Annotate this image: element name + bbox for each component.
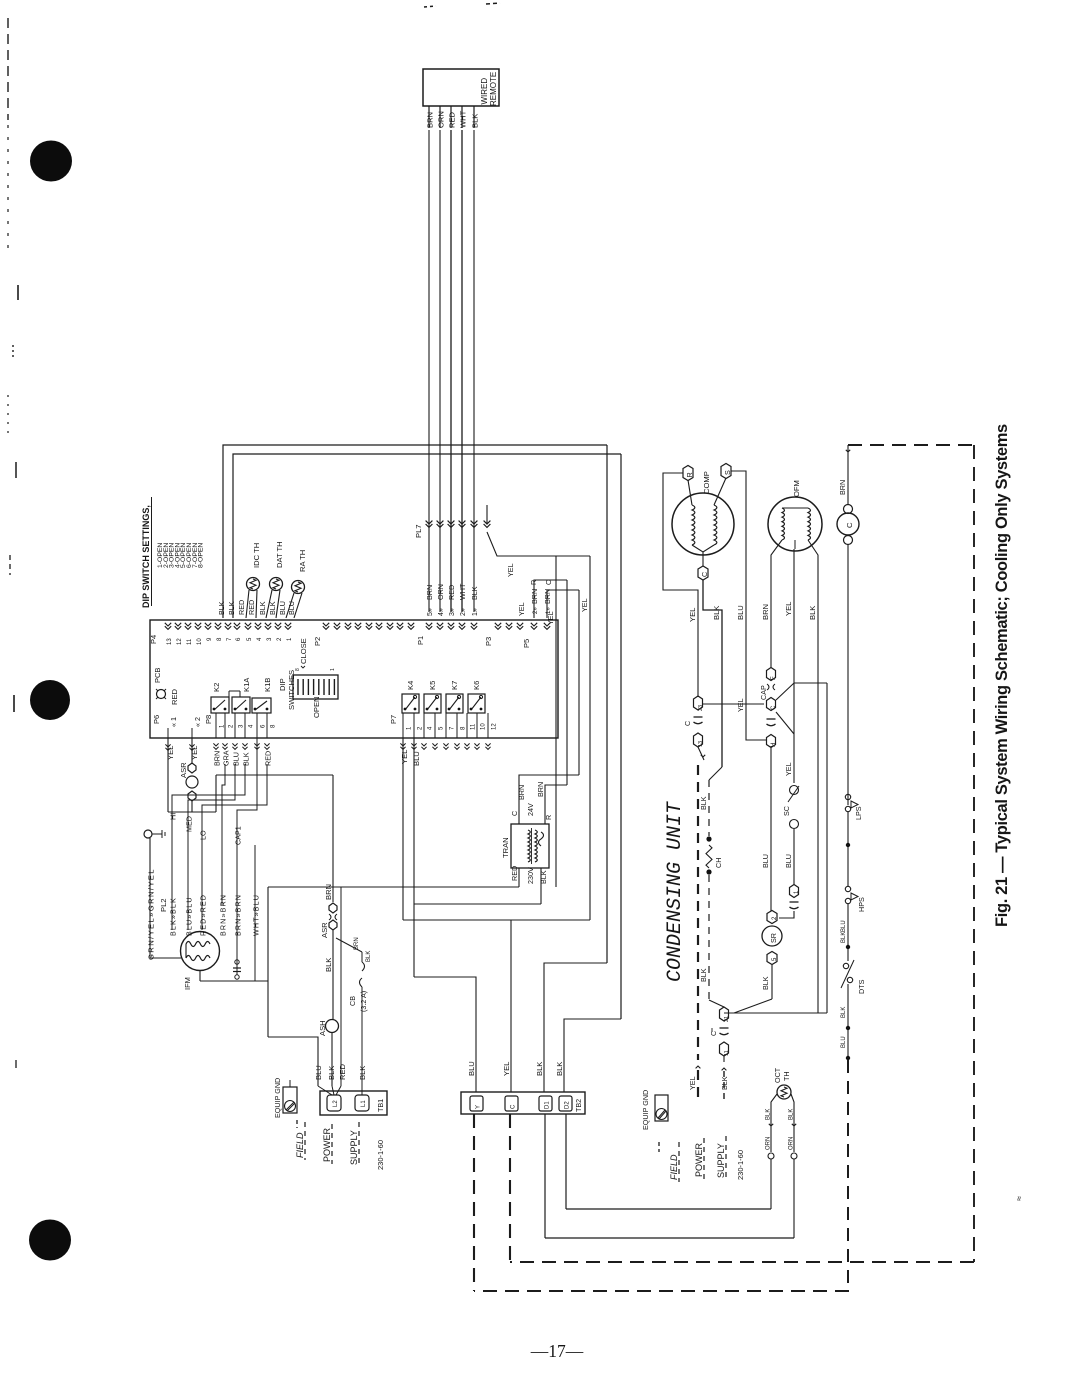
svg-text:ORN: ORN	[766, 1137, 772, 1150]
svg-text:ASR: ASR	[179, 762, 188, 778]
svg-text:21: 21	[724, 1016, 730, 1022]
svg-text:(3.2 A): (3.2 A)	[359, 991, 368, 1012]
svg-text:R: R	[544, 815, 553, 820]
svg-text:BLK: BLK	[327, 1066, 336, 1080]
svg-text:BLK: BLK	[227, 601, 236, 615]
svg-text:YEL: YEL	[736, 698, 745, 712]
svg-text:C: C	[771, 705, 777, 710]
svg-text:C: C	[683, 721, 692, 726]
svg-text:FIELD: FIELD	[669, 1154, 679, 1180]
svg-text:SWITCHES: SWITCHES	[287, 670, 296, 710]
svg-text:C: C	[544, 580, 553, 585]
svg-text:TB2: TB2	[574, 1099, 583, 1112]
svg-text:TRAN: TRAN	[501, 837, 510, 858]
svg-text:SC: SC	[782, 806, 791, 816]
svg-text:TB1: TB1	[376, 1099, 385, 1112]
svg-text:13: 13	[698, 741, 704, 747]
svg-text:WHT: WHT	[458, 110, 467, 128]
svg-text:SUPPLY: SUPPLY	[349, 1130, 359, 1165]
svg-text:BLK: BLK	[470, 586, 479, 600]
svg-text:BLK: BLK	[761, 976, 770, 990]
svg-text:YEL: YEL	[166, 746, 175, 760]
svg-text:24V: 24V	[526, 803, 535, 816]
svg-text:BLK: BLK	[366, 951, 372, 962]
svg-text:BLU: BLU	[231, 752, 240, 766]
svg-text:BLK»BLK: BLK»BLK	[168, 897, 177, 936]
svg-text:OCT: OCT	[773, 1067, 782, 1083]
svg-text:YEL: YEL	[688, 1076, 697, 1090]
svg-text:L1: L1	[361, 1100, 367, 1107]
svg-text:P4: P4	[149, 635, 158, 644]
svg-text:RED: RED	[263, 751, 272, 766]
svg-text:BLK: BLK	[324, 958, 333, 972]
svg-text:CH: CH	[714, 858, 723, 868]
svg-text:CAP: CAP	[759, 685, 768, 700]
svg-text:IFM: IFM	[183, 977, 192, 990]
svg-text:POWER: POWER	[694, 1142, 704, 1177]
svg-text:DTS: DTS	[857, 979, 866, 994]
svg-text:K6: K6	[472, 681, 481, 690]
svg-text:BRN: BRN	[425, 585, 434, 600]
svg-text:WIRED: WIRED	[480, 78, 489, 105]
svg-text:Fig. 21 — Typical System Wirin: Fig. 21 — Typical System Wiring Schemati…	[993, 424, 1011, 927]
svg-text:RED: RED	[510, 866, 519, 881]
svg-text:HPS: HPS	[857, 897, 866, 912]
svg-text:TH: TH	[782, 1071, 791, 1081]
svg-text:BLK: BLK	[841, 1007, 847, 1018]
svg-text:BLU: BLU	[761, 854, 770, 868]
svg-text:BRN: BRN	[536, 782, 545, 797]
svg-text:RED: RED	[447, 111, 456, 128]
svg-text:DIP: DIP	[278, 678, 287, 691]
svg-text:11: 11	[187, 638, 193, 645]
svg-text:23: 23	[698, 705, 704, 711]
svg-text:RED: RED	[338, 1063, 347, 1080]
svg-text:BLK: BLK	[241, 752, 250, 766]
svg-text:OPEN: OPEN	[312, 696, 321, 718]
svg-text:OFM: OFM	[792, 480, 801, 497]
svg-text:C: C	[709, 1031, 718, 1036]
svg-text:PCB: PCB	[153, 668, 162, 683]
svg-text:P6: P6	[152, 715, 161, 724]
svg-text:BLU: BLU	[841, 920, 847, 932]
svg-text:BLK: BLK	[699, 796, 708, 810]
svg-text:BRN: BRN	[324, 884, 333, 900]
svg-text:DAT TH: DAT TH	[275, 541, 284, 568]
svg-text:K2: K2	[212, 683, 221, 692]
svg-text:C: C	[700, 572, 709, 577]
svg-text:WHT»BLU: WHT»BLU	[251, 894, 260, 936]
svg-text:P5: P5	[522, 639, 531, 648]
svg-text:BLK: BLK	[258, 601, 267, 615]
svg-text:YEL: YEL	[784, 762, 793, 776]
svg-text:BLU: BLU	[412, 751, 421, 766]
svg-text:BRN: BRN	[517, 785, 526, 800]
svg-text:GRA: GRA	[221, 750, 230, 766]
svg-text:L2: L2	[333, 1100, 339, 1107]
svg-text:FIELD: FIELD	[295, 1132, 305, 1158]
svg-text:BRN»BRN: BRN»BRN	[233, 894, 242, 936]
svg-text:P8: P8	[204, 715, 213, 724]
svg-text:CONDENSING UNIT: CONDENSING UNIT	[664, 801, 687, 982]
svg-text:Y: Y	[476, 1105, 482, 1109]
svg-text:EQUIP GND: EQUIP GND	[641, 1090, 650, 1130]
svg-text:K1B: K1B	[263, 678, 272, 692]
svg-text:BLK: BLK	[808, 606, 817, 620]
svg-text:R: R	[685, 472, 694, 477]
svg-text:CB: CB	[348, 996, 357, 1006]
svg-text:BLK: BLK	[841, 932, 847, 943]
svg-text:BLK: BLK	[535, 1062, 544, 1076]
svg-text:YEL: YEL	[688, 608, 697, 622]
svg-text:—17—: —17—	[530, 1341, 584, 1361]
svg-text:RA TH: RA TH	[298, 550, 307, 572]
svg-text:230V: 230V	[526, 867, 535, 884]
svg-text:BLK: BLK	[789, 1109, 795, 1120]
svg-text:WHT: WHT	[458, 583, 467, 600]
svg-text:12: 12	[492, 723, 498, 730]
svg-text:BRN: BRN	[761, 604, 770, 620]
svg-text:BRN: BRN	[212, 751, 221, 766]
svg-text:P2: P2	[313, 637, 322, 646]
svg-text:ORN: ORN	[436, 111, 445, 128]
svg-text:YEL: YEL	[502, 1062, 511, 1076]
svg-text:C: C	[511, 1104, 517, 1109]
svg-text:BRN: BRN	[838, 480, 847, 495]
svg-text:CLOSE: CLOSE	[299, 638, 308, 664]
svg-text:P1: P1	[416, 636, 425, 645]
svg-text:BLK: BLK	[217, 601, 226, 615]
svg-text:COMP: COMP	[702, 471, 711, 494]
svg-text:H: H	[771, 743, 777, 747]
svg-text:RED: RED	[237, 600, 246, 615]
svg-text:K4: K4	[406, 681, 415, 690]
svg-text:12: 12	[177, 638, 183, 645]
svg-text:8-OPEN: 8-OPEN	[198, 543, 205, 568]
svg-text:ASR: ASR	[320, 922, 329, 938]
svg-text:11: 11	[471, 723, 477, 730]
svg-text:BLK: BLK	[699, 968, 708, 982]
svg-text:230-1-60: 230-1-60	[376, 1140, 385, 1170]
svg-text:CAP1: CAP1	[233, 826, 242, 845]
svg-text:1: 1	[330, 668, 336, 671]
svg-text:BRN»BRN: BRN»BRN	[218, 894, 227, 936]
svg-text:BRN: BRN	[425, 112, 434, 128]
svg-text:13: 13	[167, 638, 173, 645]
svg-text:BRN: BRN	[354, 937, 360, 950]
svg-text:K5: K5	[428, 681, 437, 690]
svg-text:11: 11	[724, 1050, 730, 1056]
svg-text:K7: K7	[450, 681, 459, 690]
svg-text:YEL: YEL	[400, 750, 409, 764]
svg-text:RED: RED	[170, 688, 179, 705]
svg-text:C: C	[845, 522, 854, 528]
svg-text:BLK: BLK	[358, 1066, 367, 1080]
svg-text:BLU: BLU	[278, 601, 287, 615]
svg-text:3»: 3»	[449, 608, 456, 616]
svg-text:BLU: BLU	[467, 1061, 476, 1076]
svg-text:EQUIP GND: EQUIP GND	[273, 1078, 282, 1118]
svg-text:BLK: BLK	[766, 1109, 772, 1120]
svg-text:1»: 1»	[472, 608, 479, 616]
svg-text:YEL: YEL	[546, 611, 555, 625]
svg-text:S: S	[723, 470, 732, 475]
svg-text:2»: 2»	[460, 608, 467, 616]
svg-text:K1A: K1A	[242, 677, 251, 692]
svg-text:D1: D1	[545, 1101, 551, 1109]
svg-text:BLU: BLU	[287, 601, 296, 615]
svg-text:YEL: YEL	[517, 602, 526, 616]
svg-text:BLU: BLU	[841, 1036, 847, 1048]
svg-text:10: 10	[197, 638, 203, 645]
svg-text:P3: P3	[484, 637, 493, 646]
svg-text:≈: ≈	[1014, 1196, 1024, 1201]
svg-text:F: F	[771, 676, 777, 680]
svg-text:BLU: BLU	[736, 605, 745, 620]
svg-text:LPS: LPS	[854, 806, 863, 820]
svg-text:REMOTE: REMOTE	[489, 72, 498, 106]
svg-text:BLK: BLK	[539, 870, 548, 884]
svg-text:BLK: BLK	[555, 1062, 564, 1076]
svg-text:YEL: YEL	[580, 598, 589, 612]
svg-text:ORN: ORN	[789, 1137, 795, 1150]
svg-text:SR: SR	[769, 933, 778, 943]
svg-text:HI: HI	[168, 813, 177, 820]
svg-text:5»: 5»	[427, 608, 434, 616]
svg-text:C: C	[510, 811, 519, 816]
svg-text:RED: RED	[447, 585, 456, 600]
svg-text:PL7: PL7	[414, 524, 423, 538]
svg-text:GRN/YEL»GRN/YEL: GRN/YEL»GRN/YEL	[147, 868, 156, 960]
svg-text:BLK: BLK	[470, 114, 479, 128]
svg-text:ASH: ASH	[318, 1020, 327, 1036]
svg-text:« 1: « 1	[169, 717, 178, 727]
svg-text:YEL: YEL	[190, 746, 199, 760]
svg-text:YEL: YEL	[506, 563, 515, 577]
svg-text:230-1-60: 230-1-60	[736, 1150, 745, 1180]
svg-text:MED: MED	[184, 816, 193, 832]
svg-text:RED: RED	[247, 600, 256, 615]
svg-text:ORN: ORN	[436, 584, 445, 600]
svg-text:PL2: PL2	[159, 898, 168, 912]
svg-text:BLU: BLU	[784, 854, 793, 868]
svg-text:D2: D2	[565, 1101, 571, 1109]
svg-text:DIP SWITCH SETTINGS,: DIP SWITCH SETTINGS,	[141, 505, 151, 608]
svg-text:10: 10	[481, 723, 487, 730]
svg-text:4»: 4»	[438, 608, 445, 616]
svg-text:RED»RED: RED»RED	[198, 894, 207, 936]
svg-text:YEL: YEL	[784, 602, 793, 616]
svg-text:SUPPLY: SUPPLY	[716, 1143, 726, 1178]
svg-text:8: 8	[295, 668, 301, 671]
svg-text:BLU»BLU: BLU»BLU	[184, 896, 193, 936]
svg-text:IDC TH: IDC TH	[252, 543, 261, 568]
svg-text:BLU: BLU	[314, 1065, 323, 1080]
svg-text:« 2: « 2	[193, 717, 202, 727]
svg-text:BLK: BLK	[712, 606, 721, 620]
svg-text:P7: P7	[389, 715, 398, 724]
svg-text:LO: LO	[198, 830, 207, 840]
svg-text:POWER: POWER	[322, 1127, 332, 1162]
